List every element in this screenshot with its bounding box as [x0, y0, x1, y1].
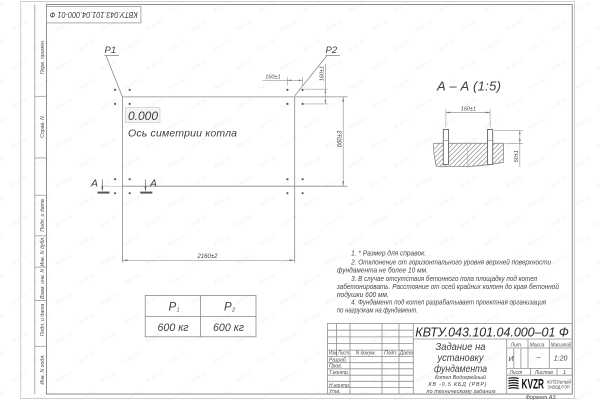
svg-text:kvzr.ru: kvzr.ru	[190, 19, 209, 33]
svg-text:kvzr.ru: kvzr.ru	[78, 116, 97, 130]
svg-text:kvzr.ru: kvzr.ru	[258, 233, 277, 247]
svg-text:kvzr.ru: kvzr.ru	[78, 311, 97, 325]
svg-text:kvzr.ru: kvzr.ru	[55, 136, 74, 150]
svg-text:kvzr.ru: kvzr.ru	[303, 233, 322, 247]
svg-text:kvzr.ru: kvzr.ru	[0, 194, 7, 208]
svg-text:Н.контр.: Н.контр.	[329, 383, 350, 389]
svg-text:kvzr.ru: kvzr.ru	[595, 331, 600, 345]
svg-text:kvzr.ru: kvzr.ru	[595, 253, 600, 267]
svg-text:kvzr.ru: kvzr.ru	[213, 38, 232, 52]
svg-text:Ось симетрии котла: Ось симетрии котла	[128, 128, 237, 140]
svg-text:kvzr.ru: kvzr.ru	[303, 350, 322, 364]
svg-text:kvzr.ru: kvzr.ru	[10, 253, 29, 267]
svg-text:kvzr.ru: kvzr.ru	[393, 194, 412, 208]
svg-text:kvzr.ru: kvzr.ru	[370, 97, 389, 111]
svg-text:kvzr.ru: kvzr.ru	[168, 194, 187, 208]
svg-text:kvzr.ru: kvzr.ru	[325, 97, 344, 111]
svg-text:kvzr.ru: kvzr.ru	[10, 370, 29, 384]
svg-text:kvzr.ru: kvzr.ru	[325, 214, 344, 228]
svg-text:kvzr.ru: kvzr.ru	[460, 58, 479, 72]
svg-text:kvzr.ru: kvzr.ru	[280, 214, 299, 228]
svg-text:kvzr.ru: kvzr.ru	[213, 77, 232, 91]
svg-text:160±1: 160±1	[265, 75, 280, 81]
svg-text:kvzr.ru: kvzr.ru	[100, 370, 119, 384]
svg-text:kvzr.ru: kvzr.ru	[415, 97, 434, 111]
svg-text:Инв. N дубл.: Инв. N дубл.	[40, 236, 46, 266]
svg-text:kvzr.ru: kvzr.ru	[145, 19, 164, 33]
svg-text:kvzr.ru: kvzr.ru	[145, 292, 164, 306]
svg-text:kvzr.ru: kvzr.ru	[550, 19, 569, 33]
svg-text:kvzr.ru: kvzr.ru	[10, 175, 29, 189]
svg-text:Перв. примен.: Перв. примен.	[40, 40, 46, 74]
svg-text:kvzr.ru: kvzr.ru	[123, 77, 142, 91]
svg-text:kvzr.ru: kvzr.ru	[10, 58, 29, 72]
svg-text:kvzr.ru: kvzr.ru	[550, 136, 569, 150]
svg-text:kvzr.ru: kvzr.ru	[0, 233, 7, 247]
svg-text:kvzr.ru: kvzr.ru	[393, 116, 412, 130]
svg-text:kvzr.ru: kvzr.ru	[190, 97, 209, 111]
svg-text:Т.контр.: Т.контр.	[329, 370, 349, 376]
svg-text:kvzr.ru: kvzr.ru	[55, 175, 74, 189]
svg-text:kvzr.ru: kvzr.ru	[100, 253, 119, 267]
svg-text:kvzr.ru: kvzr.ru	[0, 272, 7, 286]
svg-text:kvzr.ru: kvzr.ru	[505, 19, 524, 33]
svg-text:Подп. и дата: Подп. и дата	[40, 304, 46, 337]
svg-text:KVZR: KVZR	[522, 376, 545, 392]
svg-text:kvzr.ru: kvzr.ru	[78, 38, 97, 52]
svg-text:kvzr.ru: kvzr.ru	[235, 214, 254, 228]
svg-text:kvzr.ru: kvzr.ru	[280, 292, 299, 306]
svg-text:kvzr.ru: kvzr.ru	[325, 331, 344, 345]
svg-text:kvzr.ru: kvzr.ru	[235, 19, 254, 33]
svg-text:Масса: Масса	[530, 342, 545, 348]
svg-text:kvzr.ru: kvzr.ru	[168, 0, 187, 14]
svg-text:660±3: 660±3	[338, 130, 344, 147]
svg-text:Подп.: Подп.	[384, 350, 397, 356]
svg-text:kvzr.ru: kvzr.ru	[438, 38, 457, 52]
svg-text:600 кг: 600 кг	[158, 322, 190, 334]
svg-text:kvzr.ru: kvzr.ru	[235, 136, 254, 150]
svg-text:kvzr.ru: kvzr.ru	[0, 389, 7, 400]
svg-text:kvzr.ru: kvzr.ru	[213, 155, 232, 169]
svg-text:kvzr.ru: kvzr.ru	[258, 272, 277, 286]
svg-text:160±1: 160±1	[320, 66, 326, 81]
svg-text:Пров.: Пров.	[329, 364, 342, 370]
svg-text:kvzr.ru: kvzr.ru	[505, 58, 524, 72]
svg-text:kvzr.ru: kvzr.ru	[213, 350, 232, 364]
svg-text:kvzr.ru: kvzr.ru	[348, 0, 367, 14]
svg-text:kvzr.ru: kvzr.ru	[528, 0, 547, 14]
svg-text:kvzr.ru: kvzr.ru	[573, 194, 592, 208]
svg-text:kvzr.ru: kvzr.ru	[123, 194, 142, 208]
svg-text:kvzr.ru: kvzr.ru	[258, 194, 277, 208]
svg-text:kvzr.ru: kvzr.ru	[528, 194, 547, 208]
svg-text:kvzr.ru: kvzr.ru	[168, 38, 187, 52]
svg-text:kvzr.ru: kvzr.ru	[550, 214, 569, 228]
svg-text:kvzr.ru: kvzr.ru	[415, 58, 434, 72]
svg-text:kvzr.ru: kvzr.ru	[258, 350, 277, 364]
svg-text:kvzr.ru: kvzr.ru	[483, 233, 502, 247]
svg-text:kvzr.ru: kvzr.ru	[595, 58, 600, 72]
svg-text:kvzr.ru: kvzr.ru	[55, 331, 74, 345]
svg-text:kvzr.ru: kvzr.ru	[55, 253, 74, 267]
svg-text:kvzr.ru: kvzr.ru	[0, 350, 7, 364]
svg-text:kvzr.ru: kvzr.ru	[213, 272, 232, 286]
svg-text:kvzr.ru: kvzr.ru	[573, 389, 592, 400]
svg-text:kvzr.ru: kvzr.ru	[370, 58, 389, 72]
svg-text:1:20: 1:20	[554, 355, 568, 362]
svg-text:kvzr.ru: kvzr.ru	[55, 97, 74, 111]
svg-text:kvzr.ru: kvzr.ru	[393, 233, 412, 247]
svg-text:Формат А3: Формат А3	[525, 395, 556, 400]
svg-text:КВ -0,5 КБД (РВР): КВ -0,5 КБД (РВР)	[429, 382, 487, 388]
svg-text:Подп. и дата: Подп. и дата	[40, 199, 46, 232]
svg-text:kvzr.ru: kvzr.ru	[280, 331, 299, 345]
svg-text:kvzr.ru: kvzr.ru	[573, 233, 592, 247]
svg-text:kvzr.ru: kvzr.ru	[370, 19, 389, 33]
svg-text:kvzr.ru: kvzr.ru	[573, 116, 592, 130]
svg-text:kvzr.ru: kvzr.ru	[55, 214, 74, 228]
svg-text:kvzr.ru: kvzr.ru	[573, 77, 592, 91]
svg-text:kvzr.ru: kvzr.ru	[123, 350, 142, 364]
svg-text:kvzr.ru: kvzr.ru	[280, 19, 299, 33]
svg-text:kvzr.ru: kvzr.ru	[280, 136, 299, 150]
svg-text:kvzr.ru: kvzr.ru	[168, 77, 187, 91]
svg-text:160±1: 160±1	[461, 107, 476, 113]
svg-text:A: A	[149, 178, 157, 190]
svg-text:kvzr.ru: kvzr.ru	[280, 58, 299, 72]
svg-text:kvzr.ru: kvzr.ru	[573, 272, 592, 286]
svg-text:kvzr.ru: kvzr.ru	[438, 233, 457, 247]
svg-text:kvzr.ru: kvzr.ru	[190, 58, 209, 72]
svg-text:50±1: 50±1	[514, 150, 520, 162]
svg-text:kvzr.ru: kvzr.ru	[505, 175, 524, 189]
svg-text:kvzr.ru: kvzr.ru	[348, 116, 367, 130]
svg-text:kvzr.ru: kvzr.ru	[190, 292, 209, 306]
svg-text:Инв. N подл.: Инв. N подл.	[40, 354, 46, 384]
svg-text:Разраб.: Разраб.	[329, 357, 347, 363]
svg-text:kvzr.ru: kvzr.ru	[348, 38, 367, 52]
svg-text:kvzr.ru: kvzr.ru	[33, 0, 52, 14]
svg-text:Взам. инв. N: Взам. инв. N	[40, 268, 46, 298]
svg-text:kvzr.ru: kvzr.ru	[325, 175, 344, 189]
svg-text:kvzr.ru: kvzr.ru	[483, 116, 502, 130]
svg-text:P2: P2	[326, 45, 338, 56]
svg-text:kvzr.ru: kvzr.ru	[505, 214, 524, 228]
svg-text:kvzr.ru: kvzr.ru	[280, 370, 299, 384]
svg-text:kvzr.ru: kvzr.ru	[438, 0, 457, 14]
svg-text:kvzr.ru: kvzr.ru	[100, 292, 119, 306]
svg-text:kvzr.ru: kvzr.ru	[10, 331, 29, 345]
svg-text:kvzr.ru: kvzr.ru	[303, 116, 322, 130]
svg-text:kvzr.ru: kvzr.ru	[213, 0, 232, 14]
svg-text:kvzr.ru: kvzr.ru	[595, 214, 600, 228]
svg-text:kvzr.ru: kvzr.ru	[190, 175, 209, 189]
svg-text:КВТУ.043.101.04.000-01 Ф: КВТУ.043.101.04.000-01 Ф	[49, 10, 138, 19]
svg-text:kvzr.ru: kvzr.ru	[78, 272, 97, 286]
svg-text:600 кг: 600 кг	[213, 322, 245, 334]
svg-text:kvzr.ru: kvzr.ru	[573, 311, 592, 325]
svg-text:kvzr.ru: kvzr.ru	[595, 370, 600, 384]
svg-text:Утв.: Утв.	[329, 389, 340, 395]
svg-text:kvzr.ru: kvzr.ru	[100, 214, 119, 228]
svg-text:kvzr.ru: kvzr.ru	[393, 38, 412, 52]
svg-text:по нагрузкам на фундамент.: по нагрузкам на фундамент.	[337, 306, 418, 315]
svg-text:kvzr.ru: kvzr.ru	[393, 77, 412, 91]
svg-text:kvzr.ru: kvzr.ru	[168, 350, 187, 364]
svg-text:kvzr.ru: kvzr.ru	[415, 136, 434, 150]
svg-text:kvzr.ru: kvzr.ru	[55, 370, 74, 384]
svg-text:kvzr.ru: kvzr.ru	[145, 58, 164, 72]
svg-text:kvzr.ru: kvzr.ru	[550, 58, 569, 72]
svg-text:kvzr.ru: kvzr.ru	[348, 155, 367, 169]
svg-text:kvzr.ru: kvzr.ru	[123, 311, 142, 325]
svg-text:kvzr.ru: kvzr.ru	[528, 116, 547, 130]
svg-text:kvzr.ru: kvzr.ru	[258, 0, 277, 14]
svg-text:P: P	[169, 302, 177, 314]
svg-text:kvzr.ru: kvzr.ru	[33, 155, 52, 169]
svg-text:kvzr.ru: kvzr.ru	[303, 0, 322, 14]
svg-text:kvzr.ru: kvzr.ru	[370, 331, 389, 345]
svg-text:kvzr.ru: kvzr.ru	[213, 233, 232, 247]
svg-text:kvzr.ru: kvzr.ru	[78, 233, 97, 247]
svg-text:kvzr.ru: kvzr.ru	[303, 155, 322, 169]
svg-text:0.000: 0.000	[128, 109, 158, 123]
svg-text:kvzr.ru: kvzr.ru	[303, 272, 322, 286]
svg-text:kvzr.ru: kvzr.ru	[78, 77, 97, 91]
svg-text:–: –	[536, 354, 541, 361]
svg-text:kvzr.ru: kvzr.ru	[123, 155, 142, 169]
svg-text:kvzr.ru: kvzr.ru	[145, 214, 164, 228]
svg-text:kvzr.ru: kvzr.ru	[483, 38, 502, 52]
svg-text:kvzr.ru: kvzr.ru	[325, 19, 344, 33]
svg-text:kvzr.ru: kvzr.ru	[100, 331, 119, 345]
svg-text:P: P	[224, 302, 232, 314]
svg-text:kvzr.ru: kvzr.ru	[595, 292, 600, 306]
svg-text:kvzr.ru: kvzr.ru	[415, 175, 434, 189]
svg-text:kvzr.ru: kvzr.ru	[460, 175, 479, 189]
svg-text:kvzr.ru: kvzr.ru	[595, 97, 600, 111]
svg-text:kvzr.ru: kvzr.ru	[0, 311, 7, 325]
svg-text:kvzr.ru: kvzr.ru	[235, 370, 254, 384]
svg-text:kvzr.ru: kvzr.ru	[168, 233, 187, 247]
svg-text:ЗАВОД РЭП: ЗАВОД РЭП	[548, 385, 570, 390]
svg-text:kvzr.ru: kvzr.ru	[303, 38, 322, 52]
svg-text:КВТУ.043.101.04.000–01 Ф: КВТУ.043.101.04.000–01 Ф	[415, 325, 569, 339]
svg-text:Лист: Лист	[508, 370, 522, 376]
svg-text:kvzr.ru: kvzr.ru	[33, 77, 52, 91]
svg-text:1. * Размер для справок.: 1. * Размер для справок.	[351, 249, 426, 258]
svg-text:A – A (1:5): A – A (1:5)	[436, 79, 501, 94]
svg-text:Дата: Дата	[399, 350, 413, 356]
svg-text:kvzr.ru: kvzr.ru	[10, 136, 29, 150]
svg-text:kvzr.ru: kvzr.ru	[78, 155, 97, 169]
svg-text:фундамента: фундамента	[434, 363, 487, 375]
svg-text:kvzr.ru: kvzr.ru	[190, 214, 209, 228]
svg-text:kvzr.ru: kvzr.ru	[438, 116, 457, 130]
svg-text:kvzr.ru: kvzr.ru	[168, 155, 187, 169]
svg-text:kvzr.ru: kvzr.ru	[460, 19, 479, 33]
svg-text:kvzr.ru: kvzr.ru	[123, 272, 142, 286]
svg-text:Масштаб: Масштаб	[551, 342, 572, 348]
svg-text:kvzr.ru: kvzr.ru	[258, 38, 277, 52]
svg-text:kvzr.ru: kvzr.ru	[0, 155, 7, 169]
svg-text:kvzr.ru: kvzr.ru	[595, 19, 600, 33]
svg-text:Изм.Лист: Изм.Лист	[329, 350, 349, 356]
svg-text:2: 2	[231, 308, 235, 314]
svg-text:kvzr.ru: kvzr.ru	[370, 214, 389, 228]
svg-text:kvzr.ru: kvzr.ru	[258, 155, 277, 169]
svg-text:по техническому заданию: по техническому заданию	[427, 389, 496, 395]
svg-text:kvzr.ru: kvzr.ru	[235, 175, 254, 189]
svg-text:kvzr.ru: kvzr.ru	[55, 58, 74, 72]
svg-text:kvzr.ru: kvzr.ru	[123, 38, 142, 52]
svg-text:kvzr.ru: kvzr.ru	[10, 214, 29, 228]
svg-text:kvzr.ru: kvzr.ru	[303, 311, 322, 325]
svg-text:kvzr.ru: kvzr.ru	[393, 155, 412, 169]
svg-text:1: 1	[177, 308, 180, 314]
svg-text:kvzr.ru: kvzr.ru	[78, 350, 97, 364]
svg-text:kvzr.ru: kvzr.ru	[280, 97, 299, 111]
svg-text:kvzr.ru: kvzr.ru	[348, 194, 367, 208]
svg-text:kvzr.ru: kvzr.ru	[573, 0, 592, 14]
svg-text:N докум.: N докум.	[356, 350, 376, 356]
svg-text:kvzr.ru: kvzr.ru	[550, 175, 569, 189]
svg-text:kvzr.ru: kvzr.ru	[10, 19, 29, 33]
svg-text:kvzr.ru: kvzr.ru	[303, 194, 322, 208]
svg-text:kvzr.ru: kvzr.ru	[573, 38, 592, 52]
svg-text:kvzr.ru: kvzr.ru	[100, 19, 119, 33]
svg-text:1: 1	[563, 370, 566, 376]
svg-text:kvzr.ru: kvzr.ru	[550, 292, 569, 306]
svg-text:kvzr.ru: kvzr.ru	[0, 0, 7, 14]
svg-text:kvzr.ru: kvzr.ru	[235, 292, 254, 306]
svg-text:kvzr.ru: kvzr.ru	[10, 292, 29, 306]
svg-text:kvzr.ru: kvzr.ru	[145, 370, 164, 384]
svg-text:kvzr.ru: kvzr.ru	[370, 136, 389, 150]
svg-text:kvzr.ru: kvzr.ru	[483, 194, 502, 208]
svg-text:kvzr.ru: kvzr.ru	[123, 233, 142, 247]
svg-text:kvzr.ru: kvzr.ru	[10, 97, 29, 111]
svg-text:kvzr.ru: kvzr.ru	[55, 292, 74, 306]
svg-text:P1: P1	[105, 45, 117, 56]
svg-text:kvzr.ru: kvzr.ru	[258, 311, 277, 325]
svg-text:kvzr.ru: kvzr.ru	[595, 175, 600, 189]
svg-text:kvzr.ru: kvzr.ru	[595, 136, 600, 150]
svg-text:kvzr.ru: kvzr.ru	[550, 253, 569, 267]
svg-text:kvzr.ru: kvzr.ru	[213, 194, 232, 208]
svg-text:kvzr.ru: kvzr.ru	[0, 116, 7, 130]
svg-text:kvzr.ru: kvzr.ru	[505, 97, 524, 111]
svg-text:kvzr.ru: kvzr.ru	[528, 38, 547, 52]
svg-text:kvzr.ru: kvzr.ru	[415, 214, 434, 228]
svg-text:kvzr.ru: kvzr.ru	[370, 175, 389, 189]
svg-text:kvzr.ru: kvzr.ru	[415, 19, 434, 33]
svg-text:kvzr.ru: kvzr.ru	[573, 350, 592, 364]
svg-text:kvzr.ru: kvzr.ru	[168, 272, 187, 286]
svg-text:kvzr.ru: kvzr.ru	[280, 175, 299, 189]
svg-text:kvzr.ru: kvzr.ru	[528, 233, 547, 247]
svg-text:kvzr.ru: kvzr.ru	[235, 97, 254, 111]
svg-text:Котел Водогрейный: Котел Водогрейный	[435, 374, 486, 381]
svg-text:2160±2: 2160±2	[197, 254, 219, 260]
svg-text:kvzr.ru: kvzr.ru	[55, 19, 74, 33]
svg-text:kvzr.ru: kvzr.ru	[393, 0, 412, 14]
svg-text:A: A	[90, 178, 98, 190]
svg-text:kvzr.ru: kvzr.ru	[258, 116, 277, 130]
svg-text:kvzr.ru: kvzr.ru	[483, 0, 502, 14]
svg-text:kvzr.ru: kvzr.ru	[348, 77, 367, 91]
svg-text:kvzr.ru: kvzr.ru	[528, 77, 547, 91]
svg-text:kvzr.ru: kvzr.ru	[348, 233, 367, 247]
svg-text:kvzr.ru: kvzr.ru	[0, 77, 7, 91]
svg-text:Лит.: Лит.	[510, 342, 523, 348]
svg-text:kvzr.ru: kvzr.ru	[100, 136, 119, 150]
svg-text:kvzr.ru: kvzr.ru	[550, 97, 569, 111]
svg-text:kvzr.ru: kvzr.ru	[190, 370, 209, 384]
svg-text:kvzr.ru: kvzr.ru	[190, 331, 209, 345]
svg-text:kvzr.ru: kvzr.ru	[438, 194, 457, 208]
svg-text:kvzr.ru: kvzr.ru	[370, 370, 389, 384]
svg-text:kvzr.ru: kvzr.ru	[325, 58, 344, 72]
svg-text:kvzr.ru: kvzr.ru	[78, 194, 97, 208]
svg-text:kvzr.ru: kvzr.ru	[235, 58, 254, 72]
svg-text:Справ. N: Справ. N	[40, 116, 46, 138]
svg-text:КОТЕЛЬНЫЙ: КОТЕЛЬНЫЙ	[547, 377, 571, 384]
svg-text:kvzr.ru: kvzr.ru	[528, 155, 547, 169]
svg-text:kvzr.ru: kvzr.ru	[573, 155, 592, 169]
svg-text:kvzr.ru: kvzr.ru	[0, 38, 7, 52]
svg-text:kvzr.ru: kvzr.ru	[460, 214, 479, 228]
